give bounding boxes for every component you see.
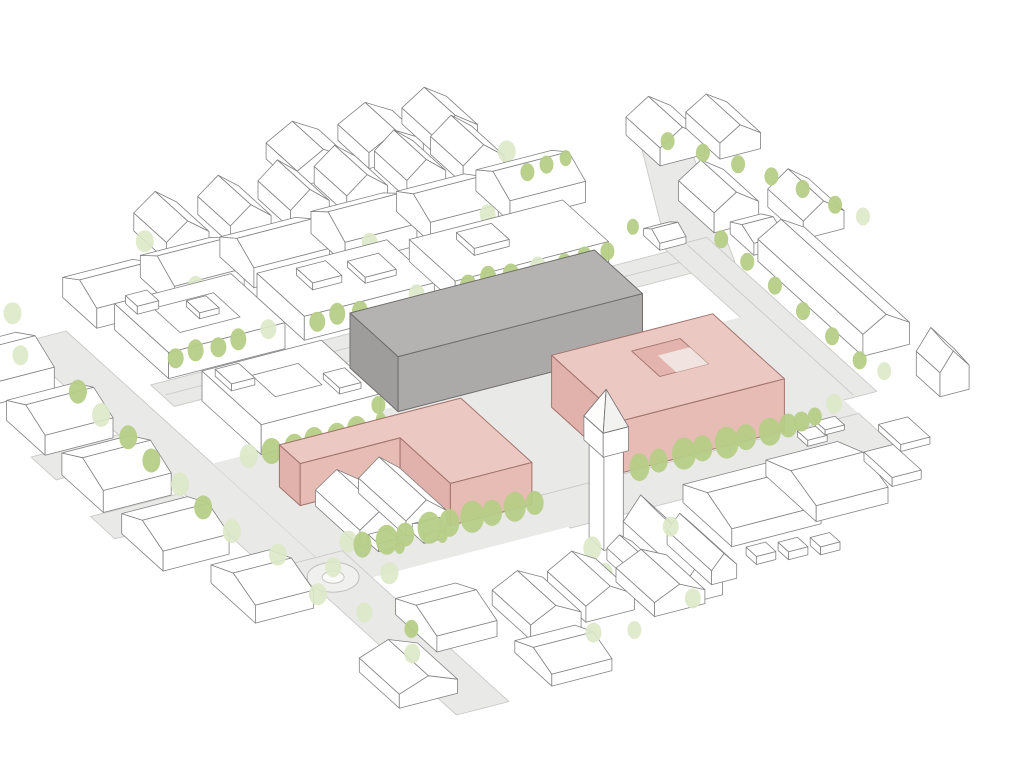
tree	[627, 621, 641, 639]
tree	[540, 156, 554, 174]
tree	[627, 219, 639, 235]
tree	[877, 362, 891, 380]
tree	[12, 345, 28, 365]
masterplan-figure	[0, 0, 1024, 768]
tree	[354, 532, 372, 558]
tree	[661, 132, 675, 150]
tree	[586, 623, 602, 643]
tree	[136, 230, 154, 252]
tree	[826, 394, 842, 414]
tree	[794, 412, 810, 432]
tree	[696, 144, 710, 162]
tree	[853, 351, 867, 369]
tree	[356, 603, 372, 623]
tree	[168, 348, 184, 368]
tree	[856, 208, 870, 226]
tree	[380, 562, 398, 584]
tree	[663, 517, 679, 537]
tree	[692, 435, 712, 461]
tree	[825, 327, 839, 345]
tree	[119, 425, 137, 449]
tree	[498, 140, 516, 162]
masterplan-axonometric-drawing	[0, 0, 1024, 768]
tree	[210, 337, 226, 357]
tree	[329, 303, 345, 325]
tree	[504, 492, 526, 522]
tree	[92, 403, 110, 427]
tree	[672, 438, 696, 470]
tree	[460, 501, 484, 533]
tree	[715, 427, 739, 459]
tree	[808, 408, 822, 426]
tree	[69, 380, 87, 404]
tree	[768, 277, 782, 295]
tree	[759, 418, 781, 446]
shrub	[437, 529, 447, 543]
tree	[764, 167, 778, 185]
tree	[828, 196, 842, 214]
church-tower-shaft	[589, 441, 604, 550]
tree	[223, 519, 241, 543]
tree	[796, 180, 810, 198]
shrub	[395, 540, 405, 554]
tree	[404, 644, 420, 664]
tree	[650, 449, 668, 473]
tree	[376, 525, 398, 555]
tree	[4, 302, 22, 324]
tree	[731, 155, 745, 173]
tree	[482, 500, 502, 526]
tree	[260, 319, 276, 339]
tree	[262, 438, 282, 464]
tree	[560, 150, 572, 166]
tree	[230, 328, 246, 350]
tree	[526, 491, 544, 515]
tree	[796, 302, 810, 320]
tree	[309, 312, 325, 332]
tree	[171, 472, 189, 496]
tree	[194, 495, 212, 519]
tree	[685, 588, 701, 608]
tree	[269, 544, 287, 566]
tree	[629, 453, 649, 481]
tree	[520, 163, 534, 181]
tree	[325, 557, 341, 577]
tree	[309, 583, 327, 605]
tree	[371, 396, 385, 414]
tree	[404, 620, 418, 638]
tree	[240, 444, 258, 468]
tree	[736, 424, 756, 450]
tree	[188, 339, 204, 361]
tree	[714, 230, 728, 248]
tree	[142, 449, 160, 473]
tree	[740, 253, 754, 271]
